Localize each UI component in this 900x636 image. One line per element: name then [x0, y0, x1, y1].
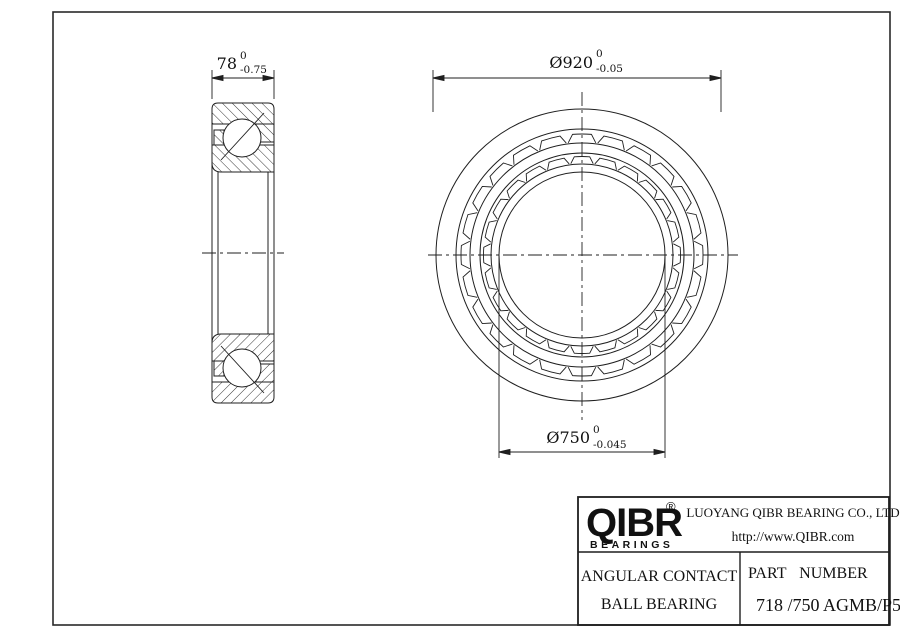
arrow-left: [212, 75, 223, 80]
od-dimension: [433, 70, 721, 112]
od-dim-tol-lower: -0.05: [596, 63, 623, 75]
cage-pocket: [485, 221, 497, 243]
width-dim-tol-lower: -0.75: [240, 64, 267, 76]
cage-pocket: [672, 186, 691, 210]
od-dim-tol-upper: 0: [596, 48, 603, 60]
cage-pocket: [667, 268, 679, 290]
part-number-label: PART NUMBER: [748, 565, 868, 582]
arrow-right: [710, 75, 721, 80]
cage-pocket: [687, 213, 701, 240]
width-dim-value: 78: [217, 54, 237, 73]
cage-pocket: [618, 166, 638, 181]
cage-pocket: [485, 268, 497, 290]
width-dim-tol-upper: 0: [240, 50, 247, 62]
brand-tagline: BEARINGS: [590, 539, 673, 551]
cage-pocket: [473, 186, 492, 210]
cage-pocket: [540, 360, 567, 374]
cage-pocket: [540, 136, 567, 150]
cage-pocket: [490, 325, 512, 347]
cage-pocket: [513, 345, 537, 364]
od-dim-value: Ø920: [549, 53, 593, 72]
cage-pocket: [598, 360, 625, 374]
cage-pocket: [490, 163, 512, 185]
arrow-right: [654, 449, 665, 454]
arrow-right: [263, 75, 274, 80]
cage-pocket: [598, 136, 625, 150]
bore-dim-tol-lower: -0.045: [593, 439, 627, 451]
product-name-line2: BALL BEARING: [601, 596, 718, 613]
company-name: LUOYANG QIBR BEARING CO., LTD: [686, 505, 899, 520]
cage-pocket: [493, 199, 508, 219]
cage-pocket: [595, 340, 617, 352]
cage-pocket: [626, 146, 650, 165]
cage-pocket: [618, 328, 638, 343]
bore-dim-value: Ø750: [546, 428, 590, 447]
cage-pocket: [655, 199, 670, 219]
front-view: [428, 92, 738, 420]
company-website: http://www.QIBR.com: [732, 529, 855, 544]
cage-pocket: [667, 221, 679, 243]
cage-pocket: [463, 213, 477, 240]
arrow-left: [499, 449, 510, 454]
cage-pocket: [652, 163, 674, 185]
cage-pocket: [526, 166, 546, 181]
title-block: QIBR ® BEARINGS LUOYANG QIBR BEARING CO.…: [578, 497, 900, 625]
bearing-drawing: 78 0 -0.75 Ø920 0 -0.05 Ø750 0 -0.045: [0, 0, 900, 636]
cage-pocket: [626, 345, 650, 364]
product-name-line1: ANGULAR CONTACT: [581, 568, 738, 585]
arrow-left: [433, 75, 444, 80]
cage-pocket: [548, 340, 570, 352]
cage-pocket: [595, 158, 617, 170]
cage-pocket: [473, 299, 492, 323]
part-number-value: 718 /750 AGMB/P5: [756, 595, 900, 615]
cage-pocket: [463, 271, 477, 298]
drawing-sheet: 78 0 -0.75 Ø920 0 -0.05 Ø750 0 -0.045: [0, 0, 900, 636]
brand-logo: QIBR ® BEARINGS: [586, 499, 683, 551]
cage-pocket: [548, 158, 570, 170]
registered-mark: ®: [666, 499, 676, 514]
cage-pocket: [652, 325, 674, 347]
cage-pocket: [672, 299, 691, 323]
cage-pocket: [687, 271, 701, 298]
cage-pocket: [655, 291, 670, 311]
bore-dim-tol-upper: 0: [593, 424, 600, 436]
cage-pocket: [513, 146, 537, 165]
cage-pocket: [493, 291, 508, 311]
side-view-cross-section: [202, 103, 284, 403]
cage-pocket: [526, 328, 546, 343]
